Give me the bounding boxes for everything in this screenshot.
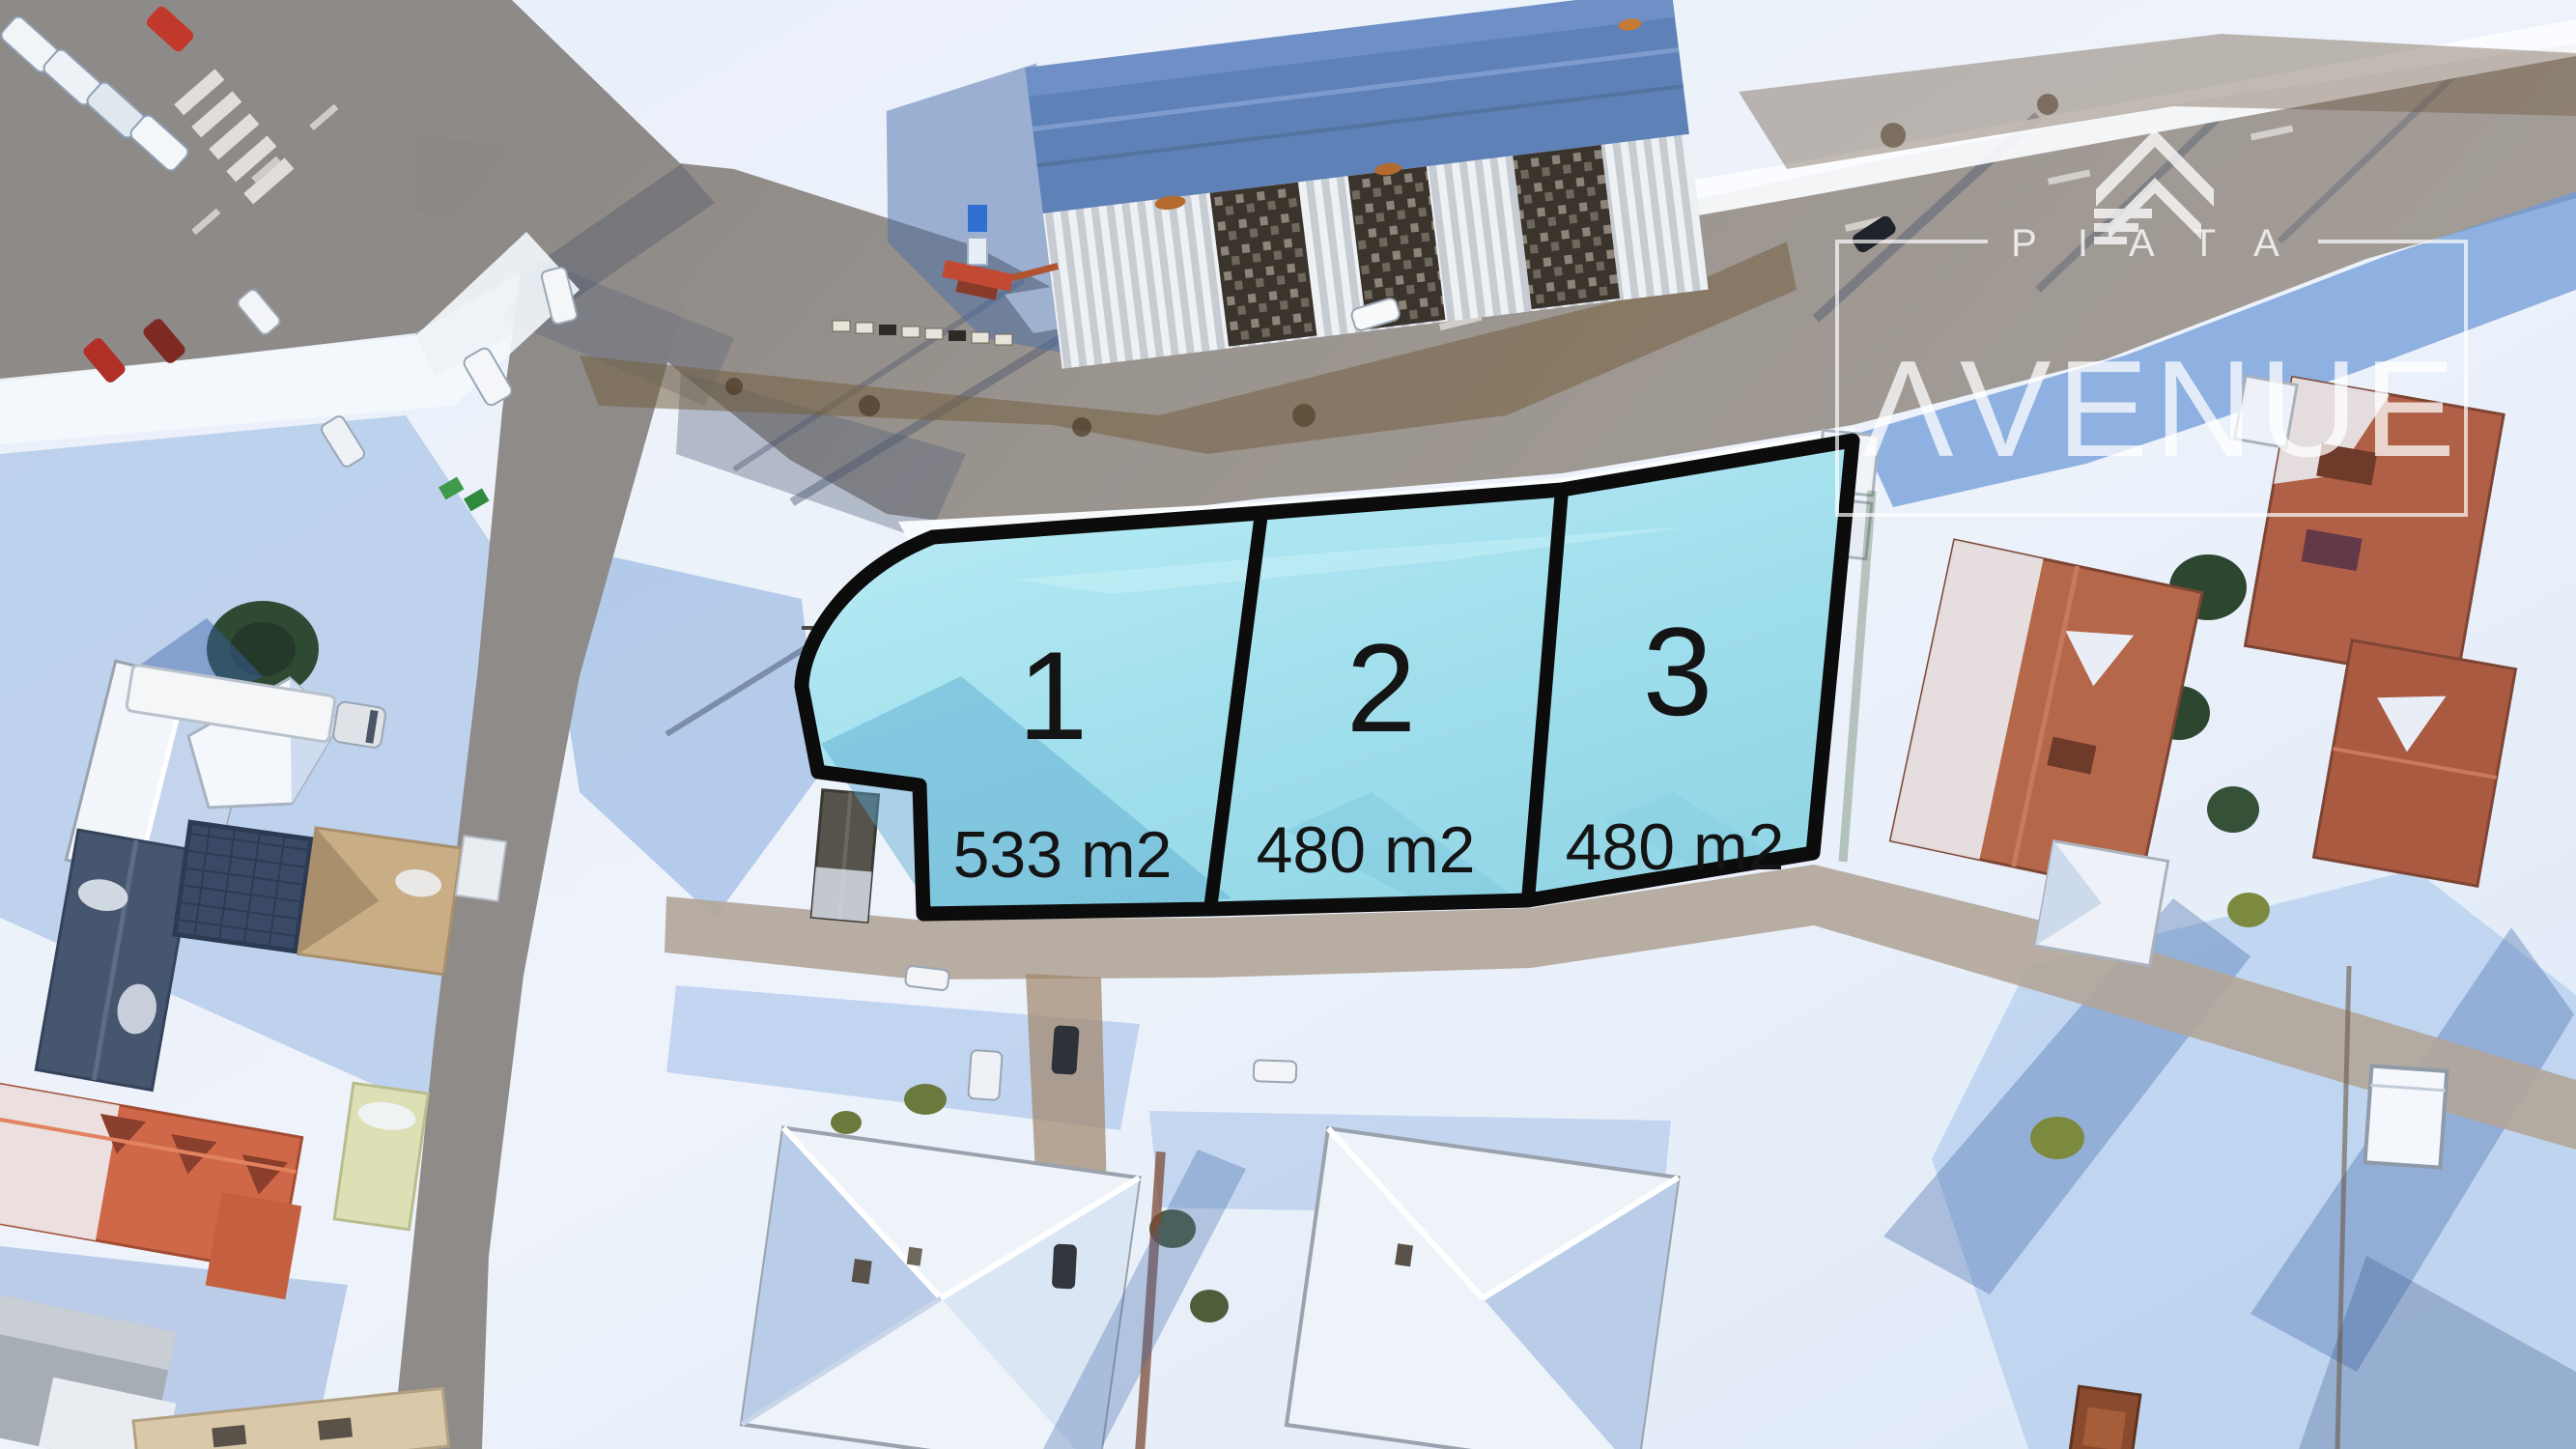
roof-wing: [206, 1192, 302, 1299]
sign-panel-white: [968, 238, 987, 265]
bush-olive: [2227, 893, 2270, 927]
fence-panel-dark: [879, 325, 896, 335]
bush-olive: [904, 1084, 947, 1115]
warehouse-window-bay: [1513, 145, 1620, 309]
bush-olive: [2030, 1117, 2084, 1159]
fence-panel: [856, 323, 873, 333]
chimney: [907, 1247, 922, 1266]
sign-panel-blue: [968, 205, 987, 232]
parcel-1-number: 1: [1018, 625, 1088, 766]
shed-roof: [2365, 1065, 2448, 1167]
fence-panel-dark: [948, 330, 966, 341]
bush: [1292, 404, 1316, 427]
garage-roof: [456, 836, 506, 901]
roof-window: [318, 1417, 353, 1439]
shed-white-low: [2035, 841, 2167, 966]
bush: [1881, 123, 1906, 148]
aerial-scene: 1 533 m2 2 480 m2 3 480 m2 PIATA ΛVENUE: [0, 0, 2576, 1449]
bush: [859, 395, 880, 416]
chimney: [1395, 1243, 1413, 1266]
parcel-1-area: 533 m2: [953, 818, 1173, 892]
conifer-tree: [2207, 786, 2259, 833]
warehouse-window-bay: [1210, 183, 1317, 347]
shed-white-field: [2365, 1065, 2448, 1167]
fence-panel: [925, 328, 943, 339]
car-dark: [1051, 1025, 1079, 1075]
bush: [725, 378, 743, 395]
snow-patch: [811, 867, 871, 923]
parcel-2-area: 480 m2: [1257, 813, 1476, 887]
bush-olive: [831, 1111, 862, 1134]
roof-window: [212, 1425, 246, 1447]
car-white: [905, 965, 949, 990]
car-dark: [1052, 1243, 1077, 1289]
car-white-covered: [968, 1050, 1002, 1100]
car-white: [1254, 1060, 1297, 1083]
fence-panel: [995, 334, 1012, 345]
bush: [1072, 417, 1091, 437]
chimney: [852, 1259, 872, 1284]
parcel-3-area: 480 m2: [1566, 810, 1785, 884]
fence-panel: [833, 321, 850, 331]
solar-panels: [178, 825, 309, 949]
trailer-top: [2082, 1407, 2126, 1449]
truck-cab: [332, 701, 386, 749]
parcel-3-number: 3: [1643, 601, 1713, 742]
watermark-piata-text: PIATA: [2011, 222, 2320, 265]
house-big-white-east: [1287, 1128, 1679, 1449]
listing-aerial-image: 1 533 m2 2 480 m2 3 480 m2 PIATA ΛVENUE: [0, 0, 2576, 1449]
bush: [1190, 1290, 1229, 1322]
house-terracotta-south: [2314, 640, 2516, 886]
fence-panel: [902, 327, 920, 337]
trailer-brown: [2067, 1386, 2140, 1449]
watermark-avenue-text: ΛVENUE: [1862, 332, 2461, 486]
parcel-2-number: 2: [1346, 617, 1416, 758]
bush: [2037, 94, 2058, 115]
chevron-bar: [2094, 209, 2152, 218]
fence-panel: [972, 332, 989, 343]
